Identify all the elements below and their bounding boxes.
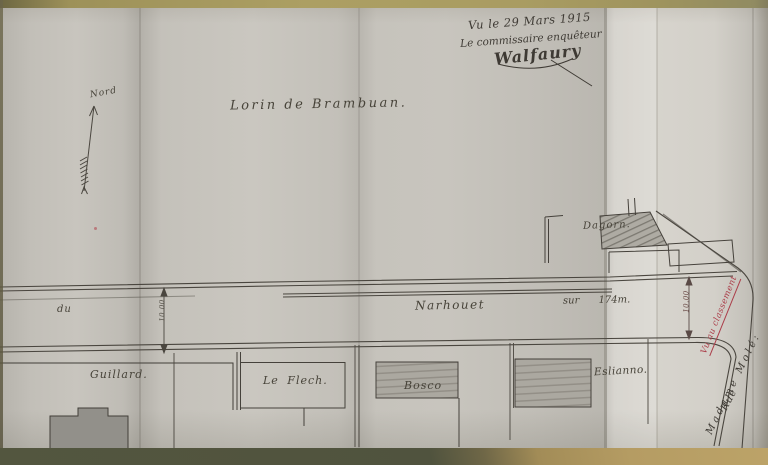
- red-ink-dot: [94, 227, 97, 230]
- photographed-road-plan: Nord Lorin de Brambuan. Vu le 29 Mars 19…: [0, 0, 768, 465]
- plan-paper: Nord Lorin de Brambuan. Vu le 29 Mars 19…: [0, 0, 768, 465]
- table-surface-top: [0, 0, 768, 8]
- road-name-label: Narhouet: [415, 298, 485, 311]
- bosco-building: [376, 362, 459, 447]
- table-surface-bottom: [0, 448, 768, 465]
- road-length-label: sur 174m.: [563, 295, 630, 306]
- plan-title: Lorin de Brambuan.: [230, 96, 407, 112]
- parcel-label-bosco: Bosco: [404, 380, 442, 391]
- road-width-right: 10.00: [684, 287, 691, 317]
- paper-edge-shadow: [754, 0, 768, 465]
- road-width-left: 10.00: [160, 296, 167, 326]
- parcel-label-dagorn: Dagorn.: [583, 220, 631, 232]
- leflech-building: [237, 352, 345, 426]
- eslianno-building: [515, 359, 591, 407]
- parcel-label-eslianno: Eslianno.: [594, 365, 648, 378]
- parcel-label-guillard: Guillard.: [90, 369, 148, 380]
- parcel-label-leflech: Le Flech.: [263, 375, 328, 386]
- dagorn-building: [545, 198, 734, 273]
- table-surface-left: [0, 0, 3, 465]
- road-label-prefix: du: [57, 305, 72, 315]
- north-arrow-icon: [80, 106, 98, 194]
- plan-linework: [0, 0, 768, 465]
